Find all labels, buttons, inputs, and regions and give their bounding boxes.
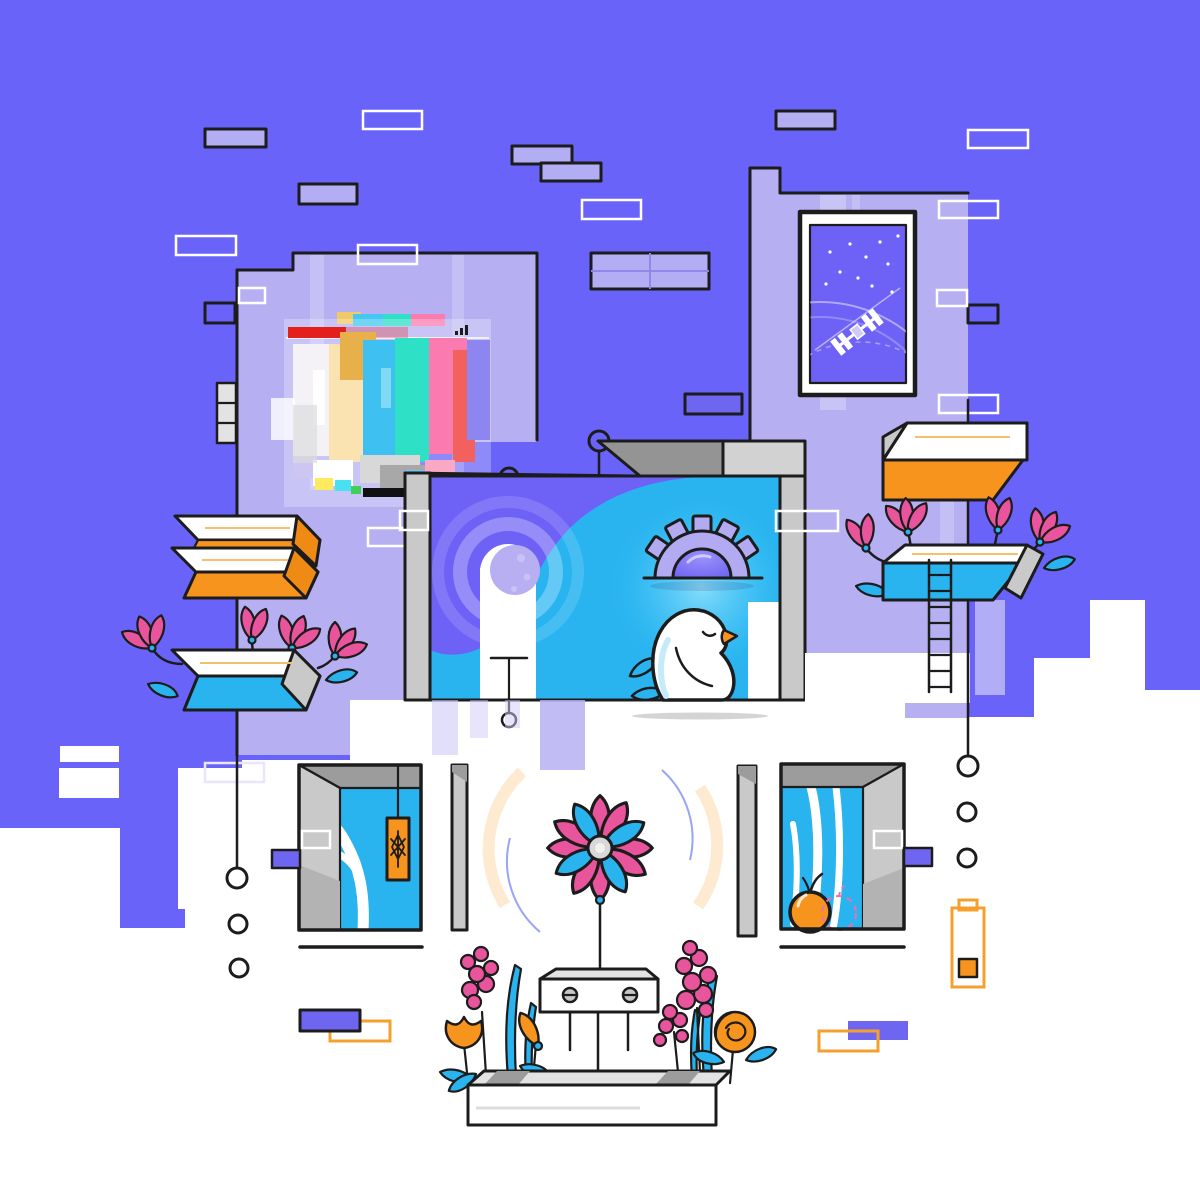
white-band-outer xyxy=(805,653,970,703)
door-right-slab xyxy=(738,766,756,936)
glitch-rect xyxy=(205,129,266,147)
glitch-columns xyxy=(293,332,490,462)
glitch-rect-purple xyxy=(685,394,742,414)
window-night-sky xyxy=(810,225,906,383)
fan-hub-center xyxy=(595,843,605,853)
trough-front xyxy=(468,1085,716,1125)
white-notch xyxy=(59,768,119,798)
hanging-circle xyxy=(227,868,247,888)
gear-shadow xyxy=(650,581,754,591)
illustration-canvas xyxy=(0,0,1200,1200)
hanging-circle xyxy=(958,756,978,776)
lavender-streak xyxy=(975,600,1005,695)
illustration-stage xyxy=(0,0,1200,1200)
hanging-circle xyxy=(958,849,976,867)
purple-bar xyxy=(121,909,185,928)
door-left-slab xyxy=(452,765,467,930)
purple-nub xyxy=(272,850,300,868)
white-band-inner xyxy=(748,602,780,700)
planter-trough xyxy=(468,1071,730,1125)
panel-left-post xyxy=(405,473,430,700)
bird-shadow xyxy=(632,713,768,720)
glitch-rect xyxy=(512,146,572,164)
panel-wave-scene xyxy=(430,477,797,700)
panel-right-post xyxy=(780,476,805,700)
hanging-circle xyxy=(229,915,247,933)
hanging-circle xyxy=(958,803,976,821)
gray-grid-block xyxy=(217,383,236,443)
orange-tag xyxy=(387,818,409,880)
glitch-rect xyxy=(776,111,835,129)
white-notch xyxy=(60,746,119,762)
box-front xyxy=(540,979,658,1012)
left-orange-shelves xyxy=(172,516,320,598)
purple-rect xyxy=(300,1010,360,1031)
glitch-rect xyxy=(299,184,357,204)
panel-top-bar-light xyxy=(723,441,805,476)
glitch-rect xyxy=(541,163,601,181)
grid-rect xyxy=(591,253,709,289)
glitch-red-bar xyxy=(288,327,346,338)
purple-nub xyxy=(904,848,932,866)
hanging-circle xyxy=(230,959,248,977)
